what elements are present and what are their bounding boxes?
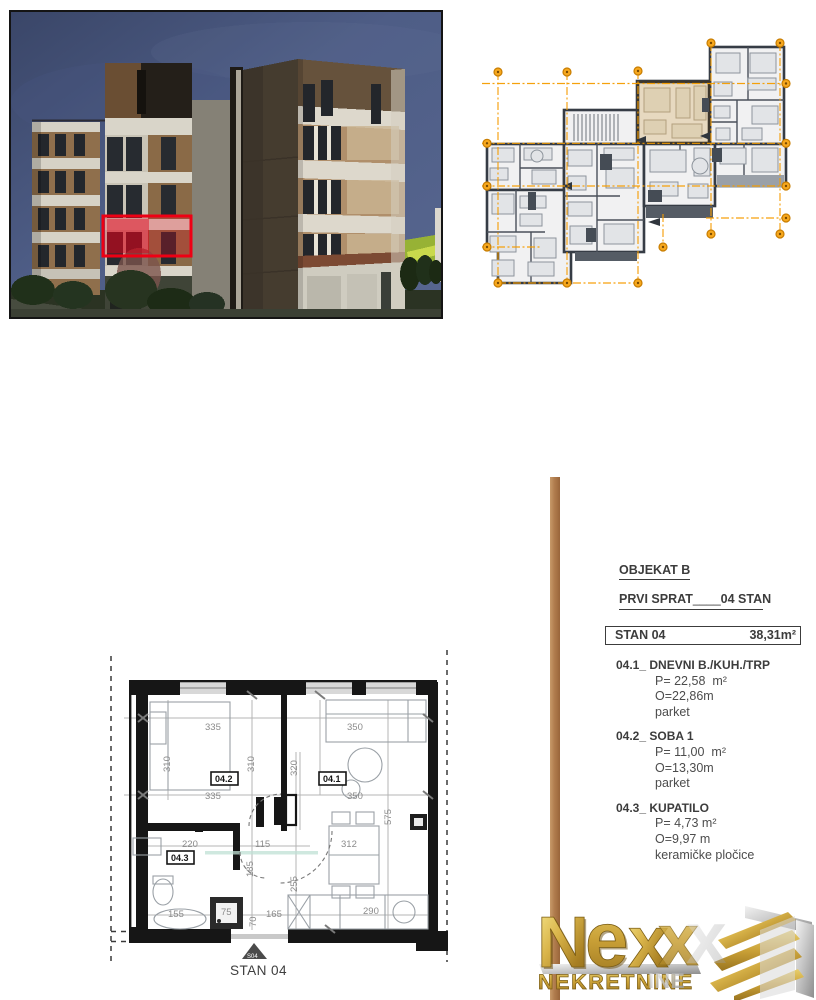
svg-text:04.1: 04.1: [323, 774, 341, 784]
svg-text:70: 70: [248, 916, 259, 927]
svg-text:290: 290: [363, 906, 379, 917]
svg-text:x: x: [686, 898, 727, 979]
svg-text:310: 310: [246, 756, 257, 772]
svg-text:335: 335: [205, 791, 221, 802]
svg-text:INE: INE: [648, 969, 685, 993]
svg-text:310: 310: [162, 756, 173, 772]
svg-text:185: 185: [245, 861, 256, 877]
svg-text:S04: S04: [247, 954, 258, 960]
svg-text:350: 350: [347, 791, 363, 802]
svg-text:575: 575: [383, 809, 394, 825]
svg-text:335: 335: [205, 722, 221, 733]
svg-text:115: 115: [255, 839, 270, 850]
svg-text:04.3: 04.3: [171, 853, 189, 863]
svg-text:75: 75: [221, 907, 232, 918]
svg-text:04.2: 04.2: [215, 774, 233, 784]
svg-text:165: 165: [266, 909, 282, 920]
svg-text:255: 255: [289, 876, 300, 892]
svg-text:320: 320: [289, 760, 300, 776]
svg-text:350: 350: [347, 722, 363, 733]
svg-text:312: 312: [341, 839, 357, 850]
svg-text:220: 220: [182, 839, 198, 850]
svg-text:155: 155: [168, 909, 184, 920]
